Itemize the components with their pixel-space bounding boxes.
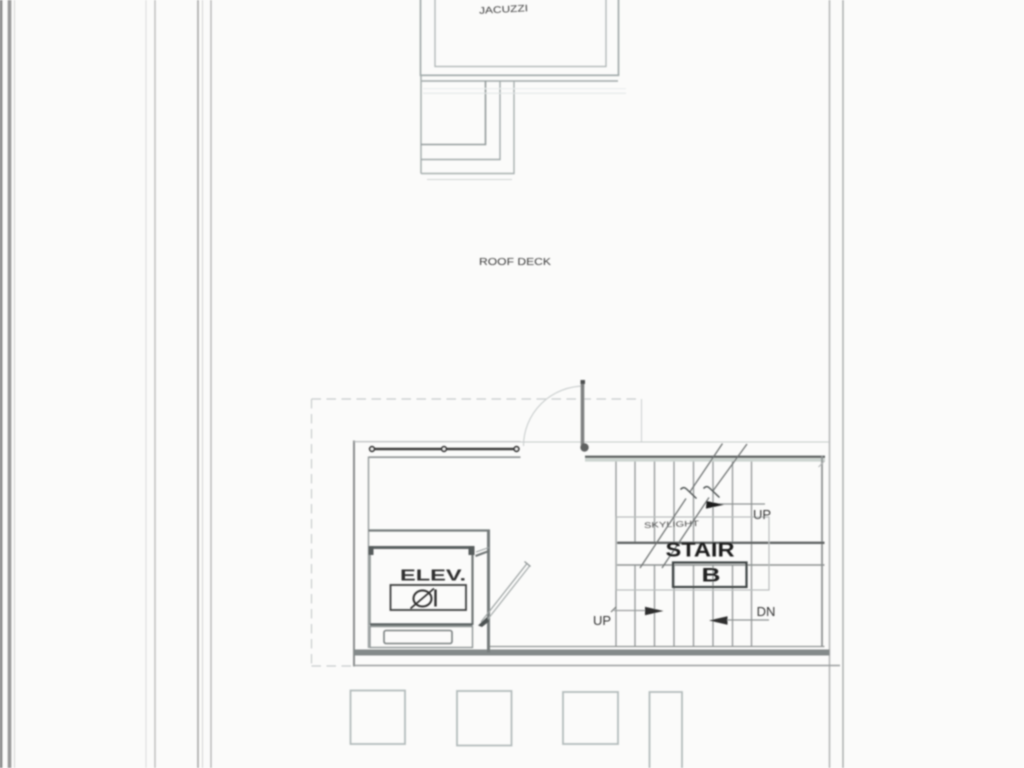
svg-text:STAIR: STAIR <box>666 540 736 562</box>
svg-text:ROOF DECK: ROOF DECK <box>479 257 551 268</box>
svg-text:UP: UP <box>753 507 771 522</box>
svg-text:UP: UP <box>593 613 611 628</box>
svg-text:DN: DN <box>757 604 776 619</box>
svg-text:ELEV.: ELEV. <box>400 568 466 585</box>
svg-text:B: B <box>702 566 721 587</box>
